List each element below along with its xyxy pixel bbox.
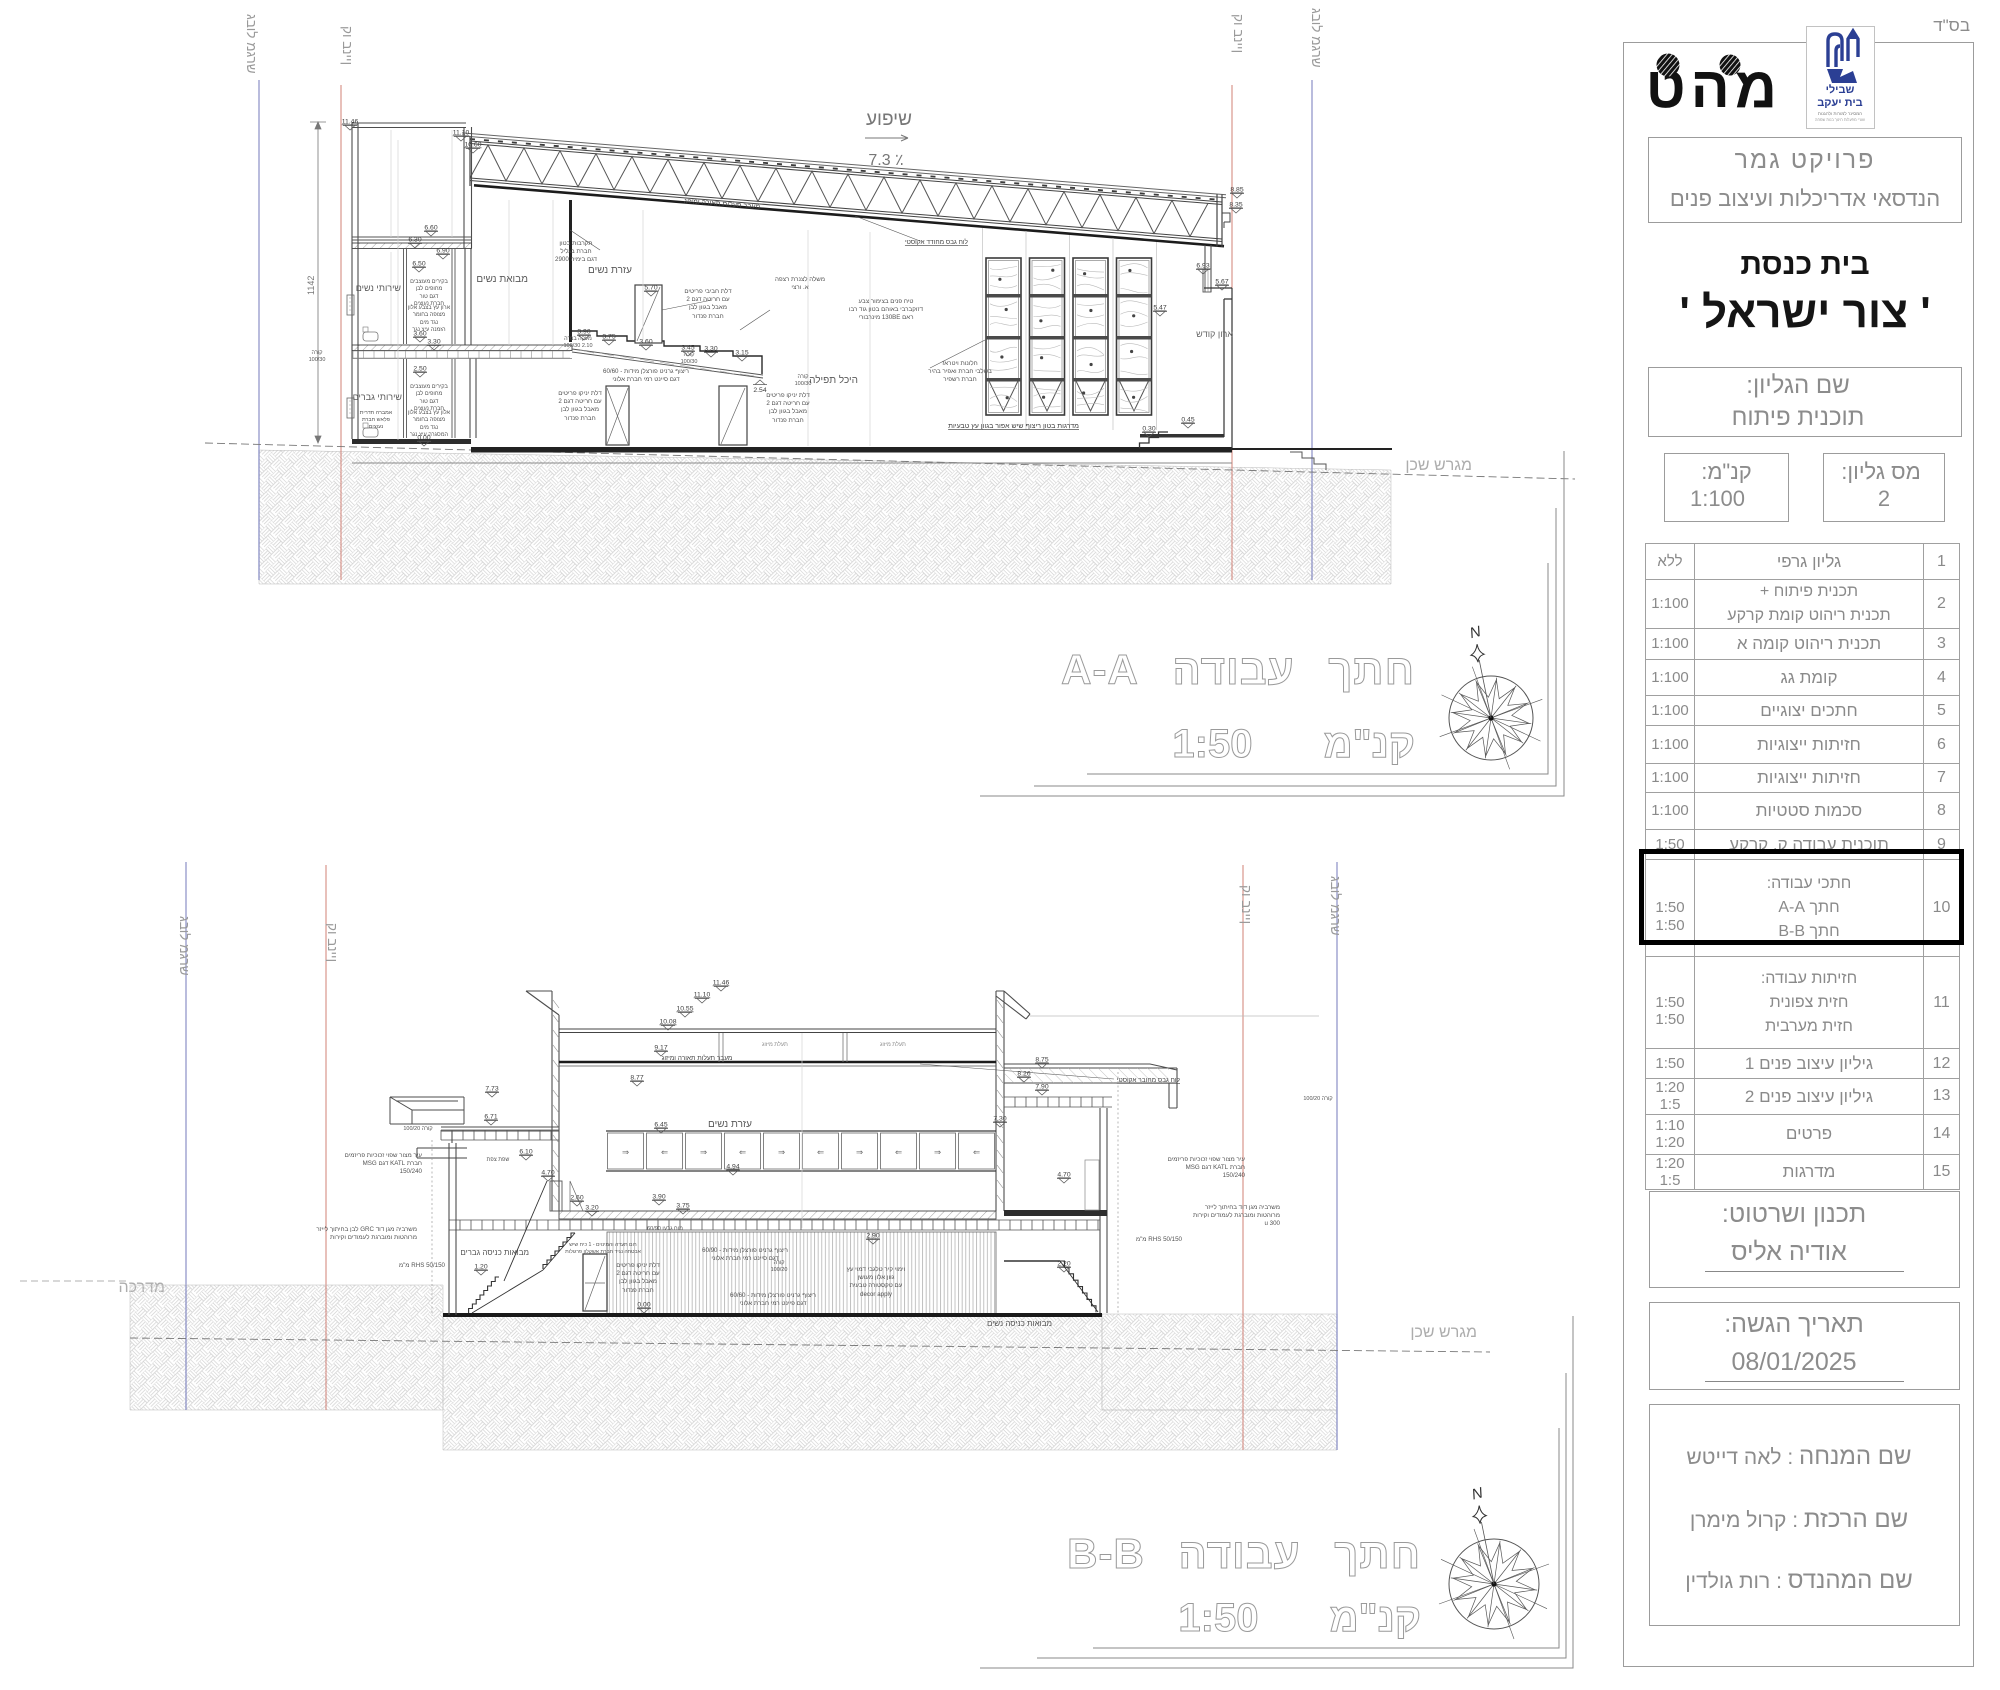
svg-text:6.90: 6.90 [436, 248, 449, 255]
svg-text:3.75: 3.75 [676, 1203, 689, 1210]
svg-text:7.73: 7.73 [485, 1086, 498, 1093]
svg-text:שרגמ לובג: שרגמ לובג [1328, 876, 1343, 936]
svg-text:שרגמ לובג: שרגמ לובג [244, 14, 259, 74]
svg-text:מבואות כניסה גברים: מבואות כניסה גברים [460, 1248, 529, 1257]
svg-text:⇒: ⇒ [778, 1147, 786, 1157]
svg-text:ןיינב וק: ןיינב וק [340, 26, 355, 65]
svg-text:1.20: 1.20 [474, 1264, 487, 1271]
svg-text:11.46: 11.46 [713, 980, 730, 987]
svg-text:11.10: 11.10 [694, 992, 711, 999]
svg-text:N: N [1470, 1484, 1485, 1503]
svg-text:שרגמ לובג: שרגמ לובג [177, 916, 192, 976]
svg-text:תעלת מיזוג: תעלת מיזוג [880, 1041, 906, 1048]
svg-text:ןיינב וק: ןיינב וק [1239, 885, 1254, 924]
svg-text:6.71: 6.71 [484, 1114, 497, 1121]
svg-text:0.45: 0.45 [1181, 417, 1194, 424]
svg-text:⇐: ⇐ [817, 1147, 825, 1157]
svg-text:2.50: 2.50 [413, 366, 426, 373]
svg-text:3.30: 3.30 [704, 346, 717, 353]
svg-text:3.90: 3.90 [577, 329, 590, 336]
svg-text:מעבר תעלות תאורה ומיזוג: מעבר תעלות תאורה ומיזוג [662, 1054, 733, 1062]
svg-text:3.45: 3.45 [681, 345, 694, 352]
svg-text:ארון קודש: ארון קודש [1196, 329, 1233, 339]
svg-text:10.08: 10.08 [659, 1019, 676, 1026]
svg-text:3.90: 3.90 [652, 1194, 665, 1201]
svg-text:6.50: 6.50 [412, 261, 425, 268]
svg-text:⇐: ⇐ [661, 1147, 669, 1157]
svg-text:3.15: 3.15 [735, 350, 748, 357]
svg-text:10.55: 10.55 [676, 1006, 693, 1013]
svg-text:11.46: 11.46 [342, 119, 359, 126]
svg-text:6.45: 6.45 [654, 1122, 667, 1129]
svg-text:בית יעקב: בית יעקב [1817, 97, 1862, 109]
svg-text:8.26: 8.26 [1017, 1071, 1030, 1078]
svg-text:מגרש שכן: מגרש שכן [1405, 457, 1472, 474]
svg-text:ןיינב וק: ןיינב וק [325, 923, 340, 962]
svg-text:מגרש שכן: מגרש שכן [1410, 1324, 1477, 1341]
svg-text:2.90: 2.90 [866, 1233, 879, 1240]
svg-text:0.00: 0.00 [637, 1302, 650, 1309]
svg-text:לוח גבס מחודד אקוסטי: לוח גבס מחודד אקוסטי [905, 238, 969, 246]
svg-text:3.30: 3.30 [427, 339, 440, 346]
svg-text:מבואת נשים: מבואת נשים [476, 274, 528, 285]
svg-text:6.30: 6.30 [408, 237, 421, 244]
svg-text:7.3 ٪: 7.3 ٪ [868, 152, 903, 169]
svg-text:6.10: 6.10 [519, 1149, 532, 1156]
svg-text:⇒: ⇒ [622, 1147, 630, 1157]
svg-text:3.75: 3.75 [602, 334, 615, 341]
svg-text:8.85: 8.85 [1230, 187, 1243, 194]
svg-text:6.60: 6.60 [424, 225, 437, 232]
svg-text:4.70: 4.70 [541, 1170, 554, 1177]
svg-text:8.35: 8.35 [1229, 202, 1242, 209]
svg-text:שיפוע: שיפוע [866, 109, 912, 130]
svg-text:מדרגות בטון ריצוף שיש אפור בגו: מדרגות בטון ריצוף שיש אפור בגוון עץ טבעי… [948, 423, 1079, 430]
svg-text:2.20: 2.20 [1057, 1261, 1070, 1268]
svg-text:N: N [1468, 623, 1483, 642]
svg-text:המסינר למורות ולהגנות: המסינר למורות ולהגנות [1818, 111, 1862, 116]
svg-text:5.67: 5.67 [1215, 279, 1228, 286]
svg-text:9.17: 9.17 [654, 1045, 667, 1052]
svg-text:שע"י מפעלות חינוך בנות שמחה: שע"י מפעלות חינוך בנות שמחה [1815, 118, 1865, 122]
svg-text:5.47: 5.47 [1153, 305, 1166, 312]
svg-text:7.30: 7.30 [993, 1116, 1006, 1123]
svg-text:1142: 1142 [306, 276, 316, 295]
svg-text:⇒: ⇒ [934, 1147, 942, 1157]
svg-text:2.60: 2.60 [570, 1195, 583, 1202]
svg-text:3.60: 3.60 [639, 339, 652, 346]
svg-text:8.75: 8.75 [1035, 1057, 1048, 1064]
svg-text:עזרת נשים: עזרת נשים [708, 1119, 752, 1130]
svg-text:10.60: 10.60 [464, 142, 481, 149]
svg-text:שירותי נשים: שירותי נשים [356, 283, 402, 293]
svg-text:11.10: 11.10 [453, 130, 470, 137]
svg-text:שרגמ לובג: שרגמ לובג [1309, 8, 1324, 68]
svg-text:עזרת נשים: עזרת נשים [588, 265, 632, 276]
svg-text:4.70: 4.70 [1057, 1172, 1070, 1179]
svg-text:4.94: 4.94 [726, 1164, 739, 1171]
svg-text:תעלת מיזוג: תעלת מיזוג [762, 1041, 788, 1048]
svg-text:8.77: 8.77 [630, 1075, 643, 1082]
svg-text:⇒: ⇒ [856, 1147, 864, 1157]
svg-text:7.90: 7.90 [1035, 1084, 1048, 1091]
svg-text:מבואות כניסה נשים: מבואות כניסה נשים [987, 1319, 1052, 1328]
svg-text:3.20: 3.20 [585, 1205, 598, 1212]
svg-text:0.30: 0.30 [1142, 426, 1155, 433]
svg-text:6.93: 6.93 [1196, 263, 1209, 270]
svg-text:⇐: ⇐ [739, 1147, 747, 1157]
svg-text:שירותי גברים: שירותי גברים [353, 392, 403, 402]
svg-text:⇐: ⇐ [973, 1147, 981, 1157]
svg-text:מעבר תעלות תאורה ומיזוג: מעבר תעלות תאורה ומיזוג [684, 197, 761, 211]
svg-text:שבילי: שבילי [1826, 83, 1855, 96]
svg-text:⇐: ⇐ [895, 1147, 903, 1157]
svg-text:⇒: ⇒ [700, 1147, 708, 1157]
svg-text:5.70: 5.70 [644, 285, 657, 292]
svg-text:ןיינב וק: ןיינב וק [1231, 14, 1246, 53]
